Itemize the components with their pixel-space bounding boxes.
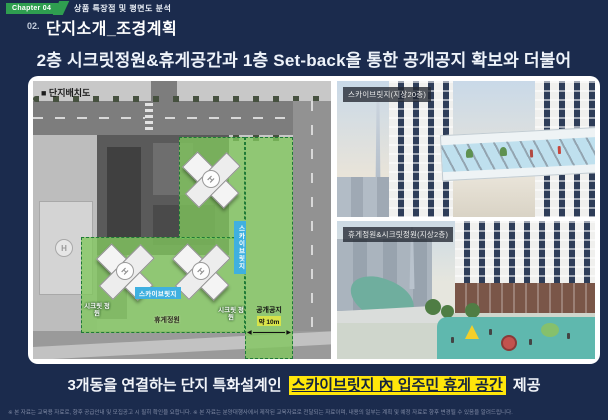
footer-disclaimer: ※ 본 자료는 교육용 자료로, 향후 공급안내 및 모집공고 시 필히 확인을… — [8, 407, 560, 415]
tree — [425, 299, 441, 315]
garden-rendering: 휴게정원&시크릿정원(지상2층) — [337, 221, 595, 359]
dimension-arrow: ◀ ▶ — [247, 329, 291, 336]
slide: Chapter 04 상품 특장점 및 평면도 분석 02. 단지소개_조경계획… — [0, 0, 608, 420]
person-figure — [567, 333, 570, 339]
playground-area — [437, 317, 595, 359]
open-space-annotation: 공개공지 약 10m — [247, 305, 291, 326]
person-figure — [529, 339, 532, 345]
rendering-caption: 스카이브릿지(지상20층) — [343, 87, 431, 102]
road-top — [33, 101, 331, 135]
chapter-badge: Chapter 04 — [6, 3, 58, 14]
site-plan-title: ■ 단지배치도 — [41, 86, 90, 99]
content-panel: ■ 단지배치도 H H H — [28, 76, 600, 364]
headline-bottom-highlight: 스카이브릿지 內 입주민 휴게 공간 — [289, 376, 506, 395]
headline-bottom-suffix: 제공 — [513, 377, 541, 394]
secret-garden-label-left: 시크릿 정원 — [83, 303, 111, 318]
carousel-equipment — [501, 335, 517, 351]
sky-bridge-rendering: 스카이브릿지(지상20층) — [337, 81, 595, 217]
crosswalk — [145, 103, 153, 133]
slide-equipment — [465, 325, 479, 339]
site-plan-map: ■ 단지배치도 H H H — [33, 81, 331, 359]
adjacent-helipad-icon: H — [55, 239, 73, 257]
page-title: 단지소개_조경계획 — [46, 15, 177, 39]
headline-bottom-prefix: 3개동을 연결하는 단지 특화설계인 — [67, 377, 281, 394]
open-space-width-label: 약 10m — [257, 316, 282, 326]
person-figure — [451, 337, 454, 343]
apartment-tower — [455, 221, 595, 287]
open-space-label: 공개공지 — [256, 307, 282, 314]
rendering-caption: 휴게정원&시크릿정원(지상2층) — [343, 227, 453, 242]
arrow-left-icon: ◀ — [247, 329, 252, 336]
secret-garden-label-right: 시크릿 정원 — [217, 307, 245, 322]
road-right — [293, 101, 331, 359]
headline-top: 2층 시크릿정원&휴게공간과 1층 Set-back을 통한 공개공지 확보와 … — [0, 46, 608, 71]
arrow-right-icon: ▶ — [286, 329, 291, 336]
tree — [465, 303, 480, 318]
person-figure — [489, 329, 492, 335]
section-number: 02. — [27, 21, 40, 31]
chapter-title: 상품 특장점 및 평면도 분석 — [74, 3, 171, 14]
headline-bottom: 3개동을 연결하는 단지 특화설계인 스카이브릿지 內 입주민 휴게 공간 제공 — [0, 374, 608, 395]
glass-sky-bridge — [440, 127, 595, 181]
rest-garden-label: 휴게정원 — [145, 315, 189, 325]
sky-bridge-label-vertical: 스카이브릿지 — [234, 221, 246, 274]
canopy-shrub — [541, 323, 559, 337]
sky-bridge-label-horizontal: 스카이브릿지 — [135, 287, 181, 299]
